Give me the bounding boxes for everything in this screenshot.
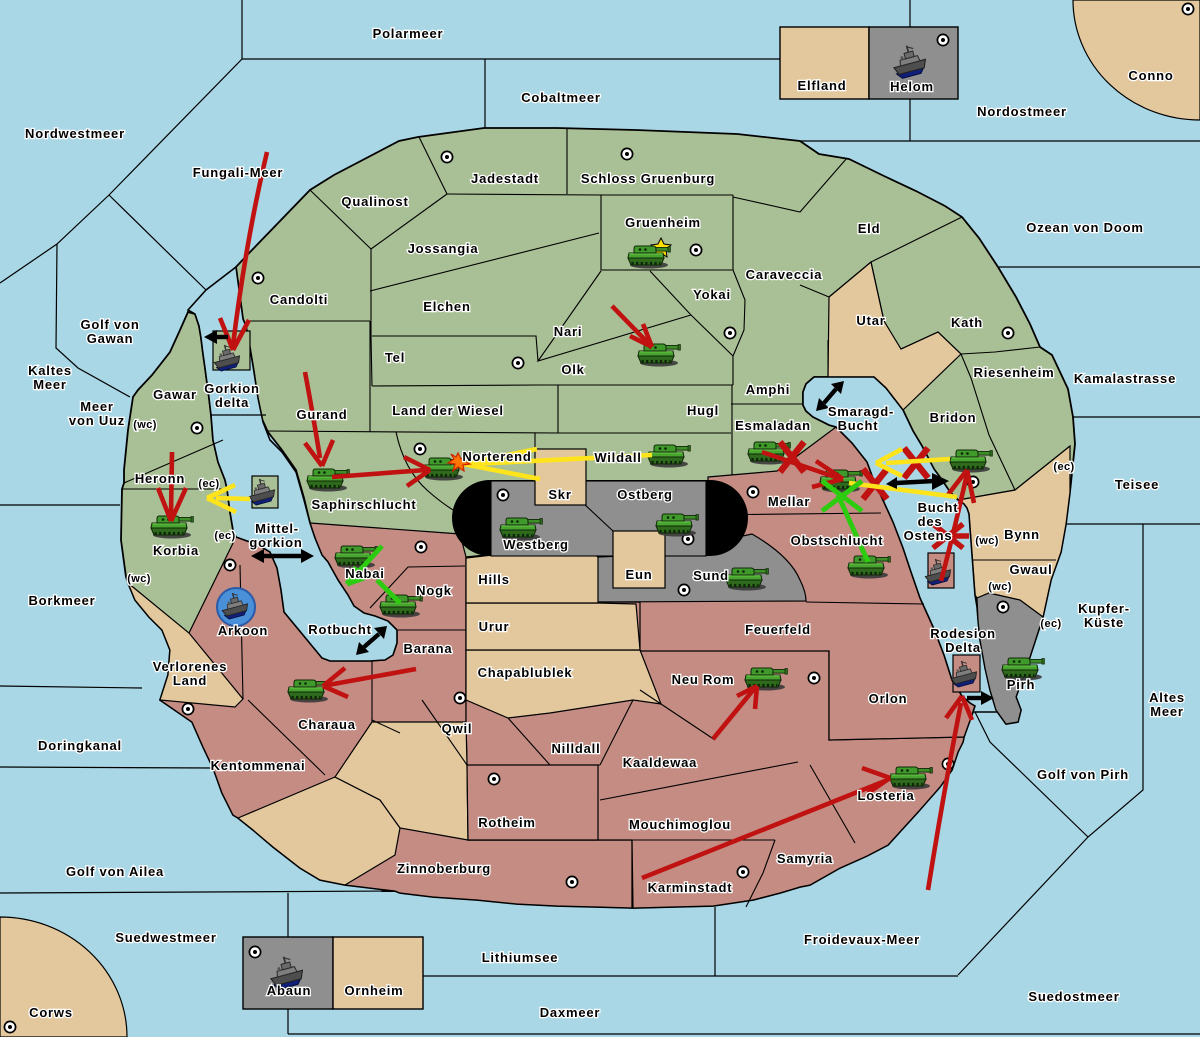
svg-text:Eun: Eun bbox=[626, 567, 653, 582]
svg-text:Nordostmeer: Nordostmeer bbox=[977, 104, 1067, 119]
svg-text:Mouchimoglou: Mouchimoglou bbox=[629, 817, 731, 832]
svg-text:Elchen: Elchen bbox=[423, 299, 470, 314]
svg-text:Jadestadt: Jadestadt bbox=[471, 171, 539, 186]
svg-text:Elfland: Elfland bbox=[798, 78, 847, 93]
svg-text:Rotbucht: Rotbucht bbox=[308, 622, 371, 637]
svg-text:Borkmeer: Borkmeer bbox=[28, 593, 95, 608]
svg-text:Amphi: Amphi bbox=[746, 382, 790, 397]
svg-text:Fungali-Meer: Fungali-Meer bbox=[193, 165, 284, 180]
svg-text:Korbia: Korbia bbox=[153, 543, 199, 558]
svg-text:Hugl: Hugl bbox=[687, 403, 719, 418]
svg-text:Froidevaux-Meer: Froidevaux-Meer bbox=[804, 932, 920, 947]
svg-text:Daxmeer: Daxmeer bbox=[540, 1005, 601, 1020]
svg-text:Mittel-: Mittel- bbox=[255, 521, 299, 536]
svg-text:Bridon: Bridon bbox=[930, 410, 977, 425]
svg-text:Olk: Olk bbox=[561, 362, 584, 377]
svg-text:Bucht: Bucht bbox=[838, 418, 879, 433]
svg-text:Jossangia: Jossangia bbox=[408, 241, 479, 256]
svg-text:Bynn: Bynn bbox=[1004, 527, 1040, 542]
svg-text:Golf von Ailea: Golf von Ailea bbox=[66, 864, 164, 879]
svg-text:(wc): (wc) bbox=[988, 581, 1012, 593]
svg-text:Doringkanal: Doringkanal bbox=[38, 738, 122, 753]
svg-text:Gruenheim: Gruenheim bbox=[625, 215, 701, 230]
svg-text:Kupfer-: Kupfer- bbox=[1078, 601, 1130, 616]
svg-text:Gurand: Gurand bbox=[296, 407, 347, 422]
svg-text:Gorkion: Gorkion bbox=[204, 381, 259, 396]
svg-text:Saphirschlucht: Saphirschlucht bbox=[311, 497, 416, 512]
svg-text:Skr: Skr bbox=[548, 487, 571, 502]
svg-text:Losteria: Losteria bbox=[858, 788, 915, 803]
svg-text:Mellar: Mellar bbox=[768, 494, 810, 509]
svg-text:Helom: Helom bbox=[890, 79, 934, 94]
svg-text:Nogk: Nogk bbox=[416, 583, 452, 598]
svg-text:Feuerfeld: Feuerfeld bbox=[745, 622, 811, 637]
svg-text:Suedostmeer: Suedostmeer bbox=[1028, 989, 1119, 1004]
svg-text:Smaragd-: Smaragd- bbox=[828, 404, 894, 419]
svg-text:Neu Rom: Neu Rom bbox=[672, 672, 735, 687]
svg-text:Teisee: Teisee bbox=[1115, 477, 1159, 492]
svg-text:Delta: Delta bbox=[945, 640, 981, 655]
svg-text:Westberg: Westberg bbox=[503, 537, 568, 552]
svg-text:Gawan: Gawan bbox=[87, 331, 134, 346]
svg-text:Golf von: Golf von bbox=[80, 317, 139, 332]
svg-text:Ostberg: Ostberg bbox=[617, 487, 672, 502]
svg-text:Gwaul: Gwaul bbox=[1009, 562, 1052, 577]
svg-text:Karminstadt: Karminstadt bbox=[648, 880, 733, 895]
svg-text:Kath: Kath bbox=[951, 315, 983, 330]
svg-text:Qwil: Qwil bbox=[442, 721, 473, 736]
svg-text:(wc): (wc) bbox=[133, 419, 157, 431]
svg-text:(ec): (ec) bbox=[1053, 461, 1074, 473]
svg-text:Orlon: Orlon bbox=[869, 691, 908, 706]
svg-text:Ornheim: Ornheim bbox=[344, 983, 403, 998]
svg-text:Caraveccia: Caraveccia bbox=[746, 267, 823, 282]
svg-text:(ec): (ec) bbox=[198, 478, 219, 490]
svg-text:Kamalastrasse: Kamalastrasse bbox=[1074, 371, 1176, 386]
svg-text:gorkion: gorkion bbox=[249, 535, 302, 550]
svg-text:Norterend: Norterend bbox=[462, 449, 531, 464]
svg-text:Bucht: Bucht bbox=[918, 500, 959, 515]
svg-text:Rotheim: Rotheim bbox=[478, 815, 536, 830]
svg-text:Kaltes: Kaltes bbox=[28, 363, 72, 378]
svg-text:(wc): (wc) bbox=[127, 573, 151, 585]
svg-text:Heronn: Heronn bbox=[135, 471, 185, 486]
svg-text:Riesenheim: Riesenheim bbox=[974, 365, 1055, 380]
svg-text:Schloss Gruenburg: Schloss Gruenburg bbox=[581, 171, 715, 186]
svg-text:Kentommenai: Kentommenai bbox=[211, 758, 306, 773]
svg-text:delta: delta bbox=[215, 395, 249, 410]
svg-text:Pirh: Pirh bbox=[1007, 677, 1035, 692]
svg-text:Polarmeer: Polarmeer bbox=[373, 26, 444, 41]
svg-text:Charaua: Charaua bbox=[298, 717, 356, 732]
svg-text:Altes: Altes bbox=[1149, 690, 1185, 705]
svg-text:Ostens: Ostens bbox=[904, 528, 953, 543]
svg-text:Esmaladan: Esmaladan bbox=[735, 418, 811, 433]
svg-text:Urur: Urur bbox=[479, 619, 510, 634]
svg-text:Meer: Meer bbox=[80, 399, 114, 414]
svg-text:Abaun: Abaun bbox=[267, 983, 311, 998]
svg-text:Arkoon: Arkoon bbox=[218, 623, 268, 638]
svg-text:Nordwestmeer: Nordwestmeer bbox=[25, 126, 125, 141]
svg-text:Samyria: Samyria bbox=[777, 851, 833, 866]
svg-text:Golf von Pirh: Golf von Pirh bbox=[1037, 767, 1129, 782]
svg-text:Nilldall: Nilldall bbox=[551, 741, 600, 756]
svg-text:Candolti: Candolti bbox=[270, 292, 328, 307]
svg-text:Zinnoberburg: Zinnoberburg bbox=[397, 861, 491, 876]
svg-text:Lithiumsee: Lithiumsee bbox=[482, 950, 559, 965]
svg-text:Conno: Conno bbox=[1128, 68, 1173, 83]
svg-text:des: des bbox=[918, 514, 943, 529]
svg-text:Meer: Meer bbox=[33, 377, 67, 392]
svg-text:Kaaldewaa: Kaaldewaa bbox=[623, 755, 697, 770]
svg-text:(ec): (ec) bbox=[214, 530, 235, 542]
svg-text:Corws: Corws bbox=[29, 1005, 73, 1020]
svg-text:Cobaltmeer: Cobaltmeer bbox=[521, 90, 601, 105]
svg-text:Tel: Tel bbox=[385, 350, 405, 365]
svg-text:Hills: Hills bbox=[478, 572, 509, 587]
svg-text:Utar: Utar bbox=[856, 313, 885, 328]
svg-text:Obstschlucht: Obstschlucht bbox=[791, 533, 884, 548]
svg-text:Chapablublek: Chapablublek bbox=[478, 665, 573, 680]
svg-text:von Uuz: von Uuz bbox=[69, 413, 125, 428]
svg-text:Ozean von Doom: Ozean von Doom bbox=[1026, 220, 1143, 235]
svg-text:Gawar: Gawar bbox=[153, 387, 197, 402]
svg-text:(wc): (wc) bbox=[975, 535, 999, 547]
svg-text:Eld: Eld bbox=[858, 221, 881, 236]
svg-text:Meer: Meer bbox=[1150, 704, 1184, 719]
svg-text:Land: Land bbox=[173, 673, 207, 688]
svg-text:Barana: Barana bbox=[404, 641, 453, 656]
svg-text:Verlorenes: Verlorenes bbox=[153, 659, 228, 674]
svg-text:Rodesion: Rodesion bbox=[930, 626, 996, 641]
svg-text:Wildall: Wildall bbox=[594, 450, 641, 465]
svg-text:Nari: Nari bbox=[554, 324, 583, 339]
svg-text:Sund: Sund bbox=[693, 568, 729, 583]
svg-text:Nabai: Nabai bbox=[345, 566, 384, 581]
svg-text:Qualinost: Qualinost bbox=[341, 194, 408, 209]
svg-text:Küste: Küste bbox=[1084, 615, 1124, 630]
svg-text:Suedwestmeer: Suedwestmeer bbox=[115, 930, 216, 945]
svg-text:(ec): (ec) bbox=[1040, 618, 1061, 630]
svg-text:Yokai: Yokai bbox=[693, 287, 731, 302]
svg-text:Land der Wiesel: Land der Wiesel bbox=[392, 403, 504, 418]
